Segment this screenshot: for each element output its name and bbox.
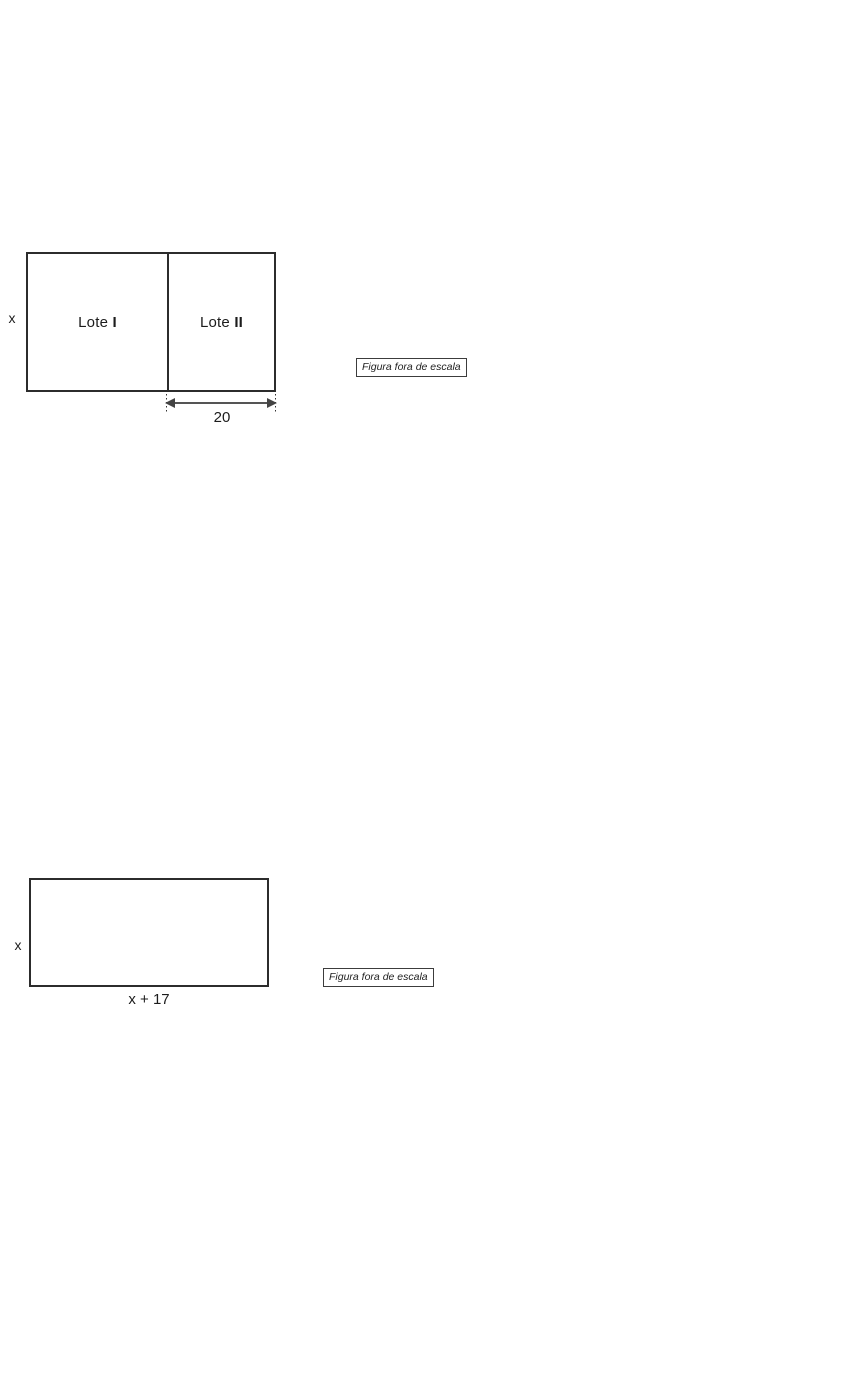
- figure2-rectangle: [29, 878, 269, 987]
- figure1-height-label: x: [2, 310, 22, 326]
- figure1-lot2-word: Lote: [200, 314, 230, 331]
- figure1-lot1-word: Lote: [78, 314, 108, 331]
- figure-sheet: x Lote I Lote II 20 Figura fora de escal…: [0, 0, 851, 1383]
- figure2-height-label: x: [8, 937, 28, 953]
- figure1-dimension-label: 20: [192, 409, 252, 426]
- figure1-lot2-numeral: II: [234, 314, 243, 331]
- figure2-scale-note: Figura fora de escala: [323, 968, 434, 987]
- figure1-scale-note: Figura fora de escala: [356, 358, 467, 377]
- figure1-lot1-cell: Lote I: [28, 254, 169, 390]
- figure1-lot1-numeral: I: [113, 314, 117, 331]
- figure1-rectangle: Lote I Lote II: [26, 252, 276, 392]
- figure1-lot2-label: Lote II: [200, 314, 243, 331]
- figure1-lot2-cell: Lote II: [169, 254, 274, 390]
- figure2-width-label: x + 17: [109, 991, 189, 1008]
- figure1-lot1-label: Lote I: [78, 314, 117, 331]
